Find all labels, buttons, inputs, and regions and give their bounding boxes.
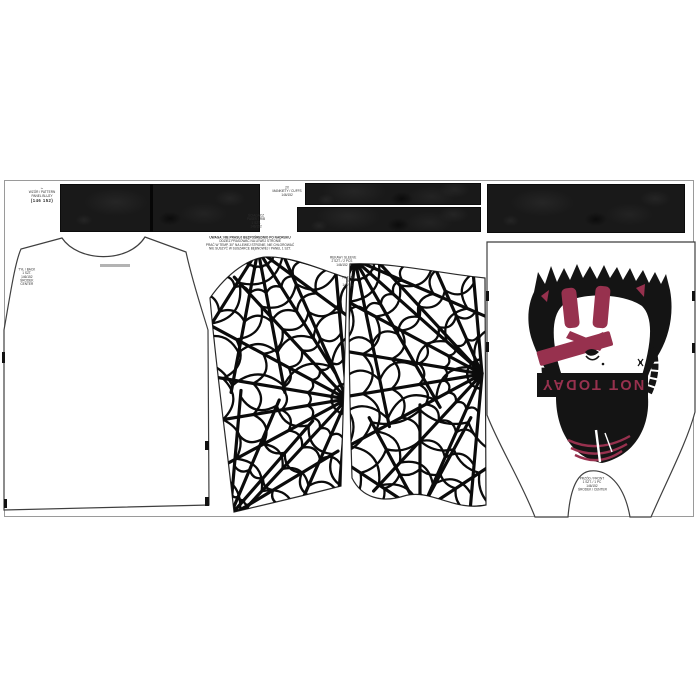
banner-text: NOT TODAY xyxy=(541,376,645,392)
pattern-pieces-canvas: NOT TODAY xyxy=(0,0,700,700)
back-piece-label: TYŁ / BACK 1 SZT. 146/152 ŚRODEK CENTER xyxy=(16,268,38,287)
size-label: (146 152) xyxy=(20,198,64,203)
not-today-banner: NOT TODAY xyxy=(537,373,648,397)
notch-mark xyxy=(4,499,7,508)
fabric-panel-sheet: NOT TODAY ✂ WZÓR / PATTERN PANEL BLUZY (… xyxy=(0,0,700,700)
rib-label-top: 2X MANKIETY / CUFFS 146/152 xyxy=(272,186,302,197)
notch-mark xyxy=(692,291,695,301)
notch-mark xyxy=(692,343,695,353)
notch-mark xyxy=(205,441,209,450)
sleeve-label-b: RĘKAW 2X 146/152 xyxy=(340,276,356,287)
neckline-smudge xyxy=(100,264,130,267)
notch-mark xyxy=(486,342,489,352)
notch-mark xyxy=(205,497,209,506)
care-instructions: UWAGA: NIE PRASUJ BEZPOŚREDNIO PO NADRUK… xyxy=(196,236,304,251)
notch-mark xyxy=(486,291,489,301)
front-piece-label: PRZÓD / FRONT 1 SZT. / 1 PC 146/152 ŚROD… xyxy=(578,477,606,492)
corner-info-block: ✂ WZÓR / PATTERN PANEL BLUZY (146 152) xyxy=(20,187,64,203)
rib-label-bottom: ŚCIĄGACZ PASEK / RIB 1 SZT. 146/152 xyxy=(243,214,269,229)
notch-mark xyxy=(2,352,5,363)
sleeve-label-a: RĘKAW / SLEEVE 2 SZT. / 2 PCS 146/152 xyxy=(330,256,354,267)
